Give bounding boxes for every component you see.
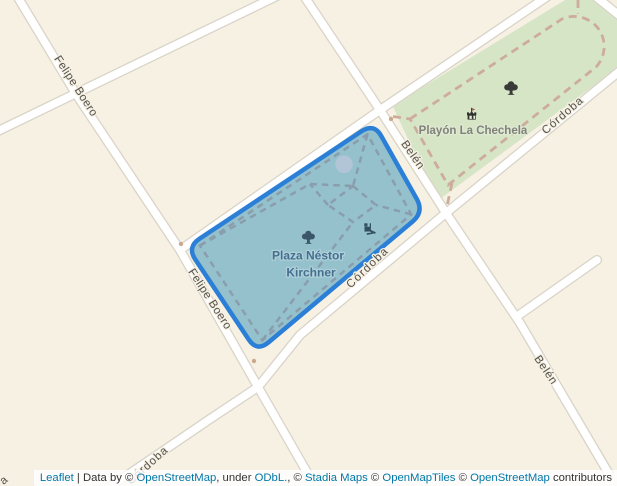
svg-text:Kirchner: Kirchner — [286, 266, 336, 280]
svg-text:Plaza Néstor: Plaza Néstor — [272, 249, 344, 263]
svg-text:Playón La Chechela: Playón La Chechela — [419, 125, 528, 137]
